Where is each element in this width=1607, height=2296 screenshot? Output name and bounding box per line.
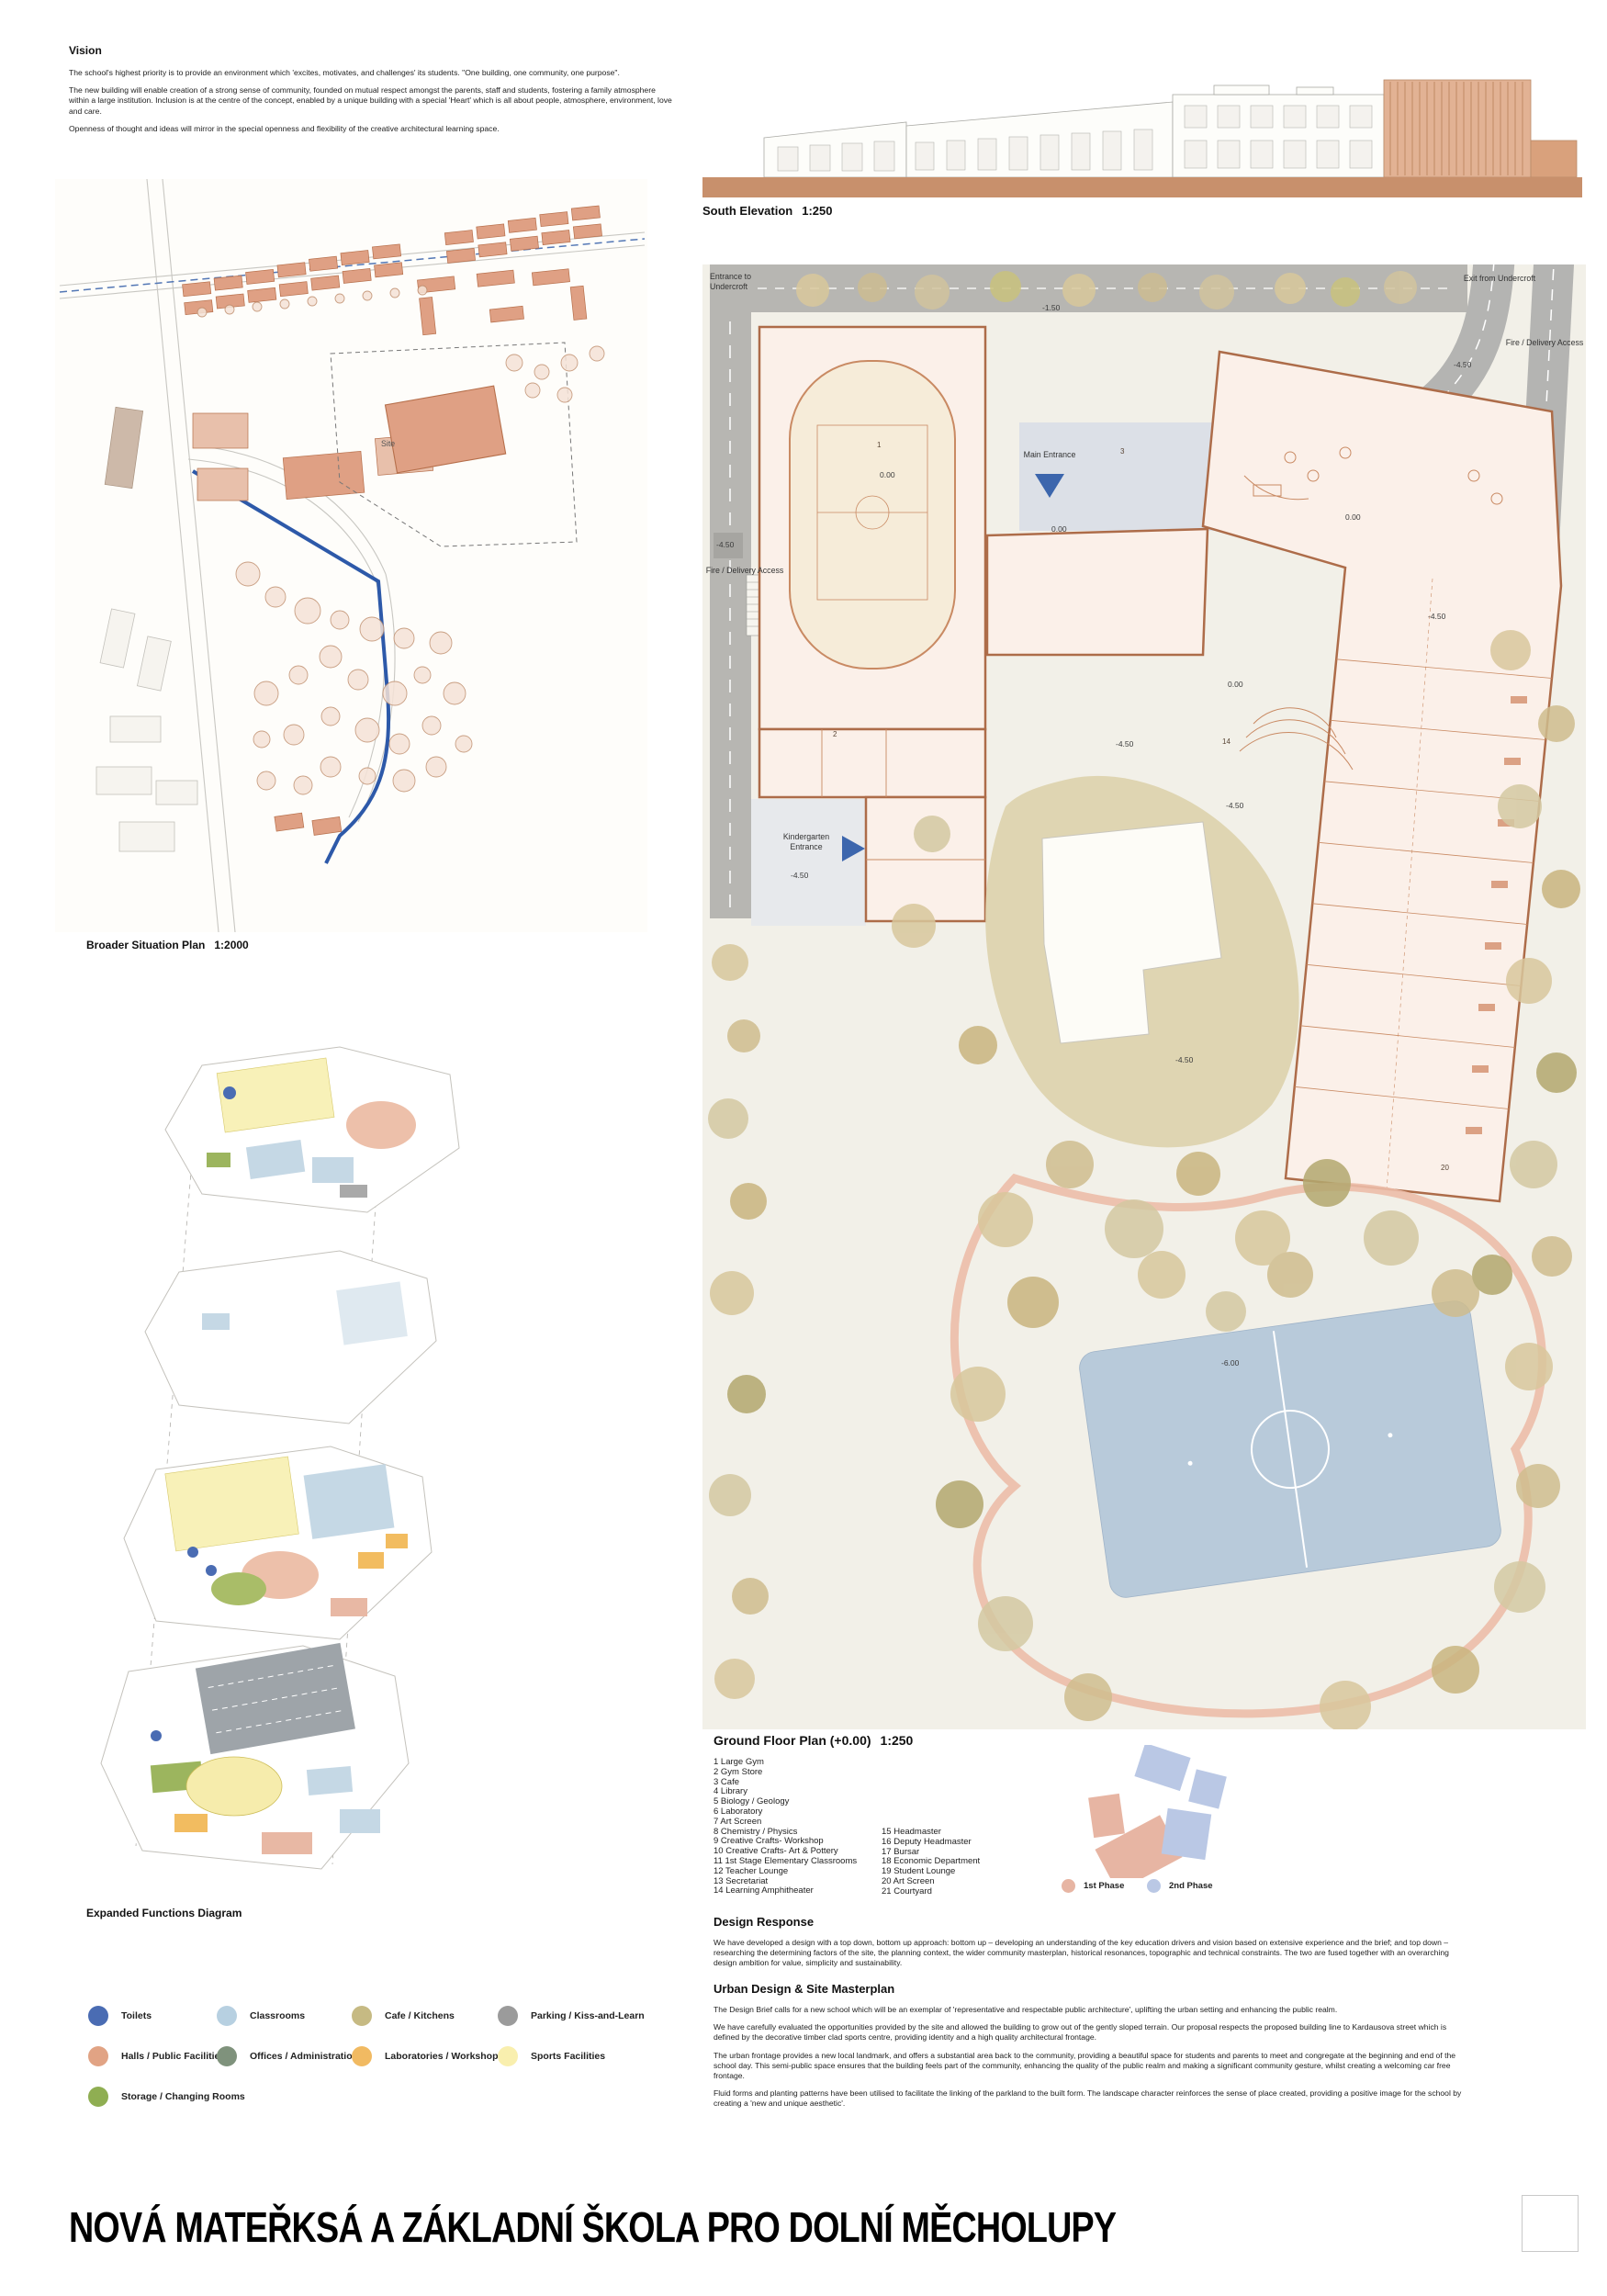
legend-dot-storage [88, 2087, 108, 2107]
ground-plan-key-col2: 15 Headmaster 16 Deputy Headmaster 17 Bu… [882, 1828, 980, 1897]
level-marker: -4.50 [1454, 360, 1471, 369]
level-marker: -4.50 [1116, 739, 1133, 748]
level-marker: 0.00 [1345, 512, 1361, 522]
phase-2-legend: 2nd Phase [1147, 1879, 1213, 1893]
level-marker: -4.50 [1175, 1055, 1193, 1064]
ground-plan-key-col1: 1 Large Gym 2 Gym Store 3 Cafe 4 Library… [714, 1758, 857, 1896]
level-marker: -4.50 [791, 871, 808, 880]
phase-1-dot [1062, 1879, 1075, 1893]
situation-plan-drawing: Site [55, 179, 647, 932]
urban-design-title: Urban Design & Site Masterplan [714, 1982, 1462, 1996]
level-marker: -4.50 [716, 540, 734, 549]
vision-paragraph: Openness of thought and ideas will mirro… [69, 124, 675, 134]
functions-diagram-drawing [64, 1038, 597, 1892]
exit-undercroft-label: Exit from Undercroft [1463, 274, 1536, 284]
vision-section: Vision The school's highest priority is … [69, 44, 675, 141]
level-marker: 0.00 [1228, 680, 1243, 689]
fire-delivery-label-left: Fire / Delivery Access [702, 566, 787, 576]
level-marker: -6.00 [1221, 1358, 1239, 1367]
phase-key-diagram [1084, 1745, 1231, 1878]
room-number: 2 [833, 730, 837, 738]
title-block-box [1522, 2195, 1579, 2252]
level-marker: -4.50 [1226, 801, 1243, 810]
south-elevation-svg [700, 51, 1586, 197]
ground-floor-plan-drawing: Entrance to Undercroft Exit from Undercr… [702, 264, 1586, 1729]
entrance-undercroft-label: Entrance to Undercroft [710, 272, 776, 291]
legend-dot-sports [498, 2046, 518, 2066]
fire-delivery-label-right: Fire / Delivery Access [1503, 338, 1586, 348]
vision-paragraph: The school's highest priority is to prov… [69, 68, 675, 78]
phase-key-svg [1084, 1745, 1231, 1878]
room-number: 1 [877, 441, 881, 449]
legend-dot-toilets [88, 2006, 108, 2026]
level-marker: 0.00 [1051, 524, 1067, 534]
urban-design-paragraph: The urban frontage provides a new local … [714, 2051, 1462, 2082]
level-marker: 0.00 [880, 470, 895, 479]
legend-dot-offices [217, 2046, 237, 2066]
ground-plan-caption: Ground Floor Plan (+0.00)1:250 [714, 1733, 913, 1748]
urban-design-paragraph: Fluid forms and planting patterns have b… [714, 2088, 1462, 2109]
urban-design-section: Urban Design & Site Masterplan The Desig… [714, 1982, 1462, 2117]
vision-title: Vision [69, 44, 675, 57]
functions-diagram-caption: Expanded Functions Diagram [86, 1907, 242, 1919]
design-response-title: Design Response [714, 1915, 1462, 1929]
level-marker: -1.50 [1042, 303, 1060, 312]
urban-design-paragraph: We have carefully evaluated the opportun… [714, 2022, 1462, 2043]
legend-dot-cafe [352, 2006, 372, 2026]
urban-design-paragraph: The Design Brief calls for a new school … [714, 2005, 1462, 2015]
legend-dot-parking [498, 2006, 518, 2026]
room-number: 20 [1441, 1164, 1449, 1172]
kindergarten-entrance-label: Kindergarten Entrance [776, 832, 837, 851]
south-elevation-caption: South Elevation1:250 [702, 204, 832, 218]
project-title: NOVÁ MATEŘKSÁ A ZÁKLADNÍ ŠKOLA PRO DOLNÍ… [69, 2202, 1116, 2252]
functions-diagram-svg [64, 1038, 597, 1892]
room-number: 14 [1222, 737, 1231, 746]
ground-floor-plan-svg [702, 264, 1586, 1729]
design-response-paragraph: We have developed a design with a top do… [714, 1938, 1462, 1969]
phase-1-legend: 1st Phase [1062, 1879, 1124, 1893]
level-marker: -4.50 [1428, 612, 1445, 621]
legend-dot-halls [88, 2046, 108, 2066]
situation-plan-svg [55, 179, 647, 932]
situation-plan-caption: Broader Situation Plan1:2000 [86, 939, 249, 951]
legend-dot-labs [352, 2046, 372, 2066]
legend-dot-classrooms [217, 2006, 237, 2026]
vision-paragraph: The new building will enable creation of… [69, 85, 675, 117]
room-number: 3 [1120, 447, 1124, 456]
site-label: Site [381, 439, 395, 449]
south-elevation-drawing [700, 51, 1586, 197]
main-entrance-label: Main Entrance [998, 450, 1101, 460]
phase-2-dot [1147, 1879, 1161, 1893]
design-response-section: Design Response We have developed a desi… [714, 1915, 1462, 1976]
